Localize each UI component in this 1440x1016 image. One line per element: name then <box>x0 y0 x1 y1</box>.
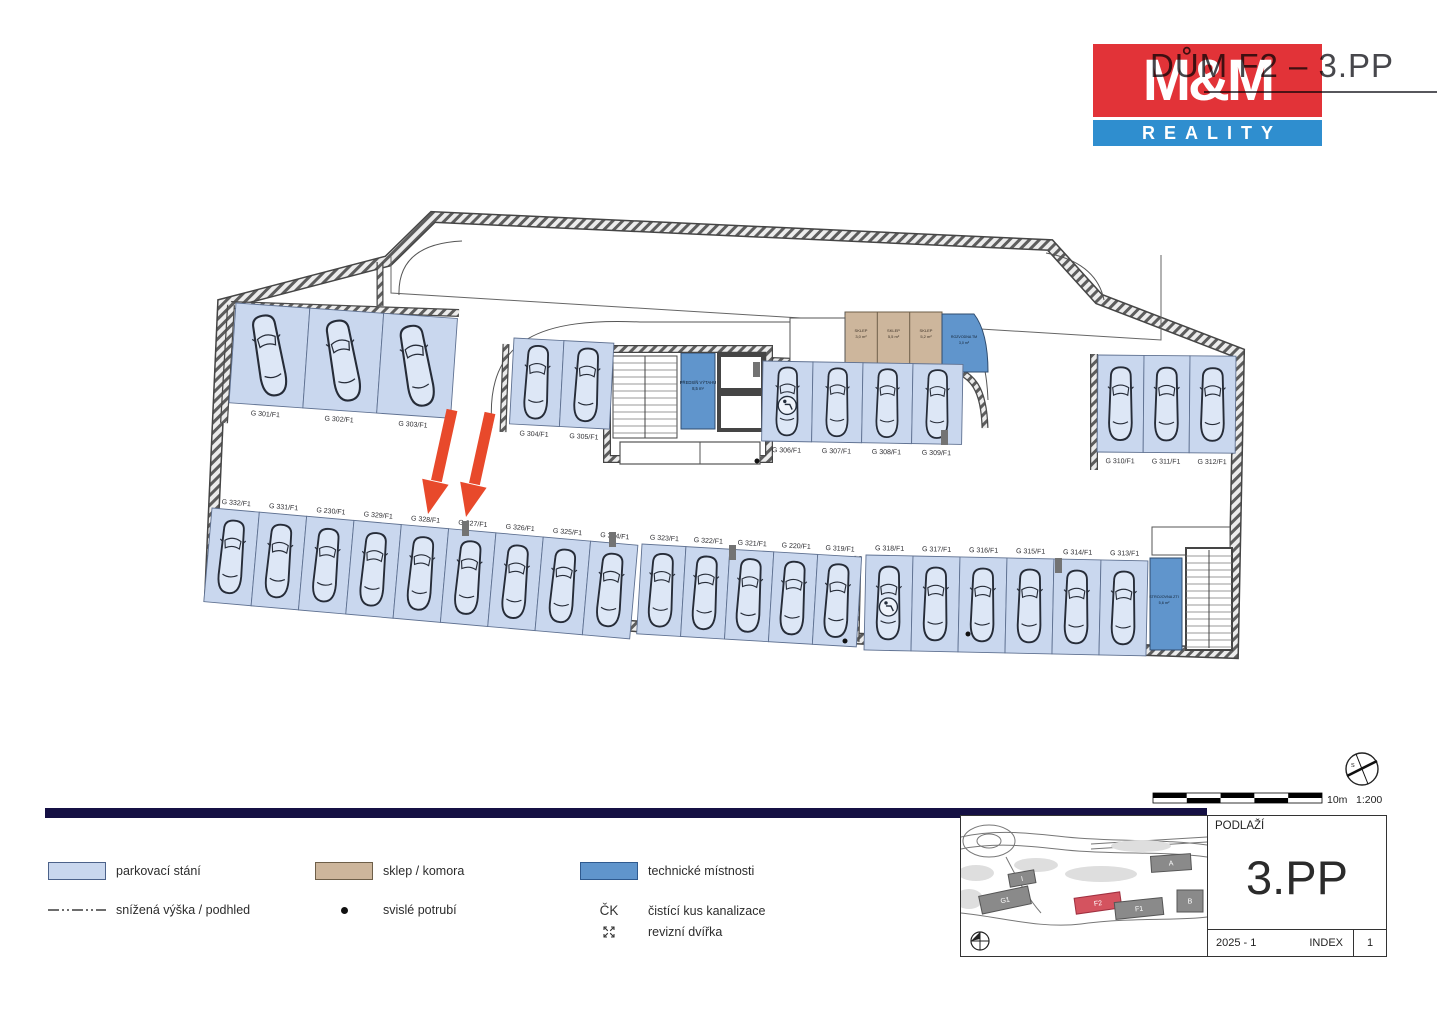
legend-label: sklep / komora <box>383 864 464 878</box>
stall-g-324-f1 <box>582 541 638 639</box>
stall-g-311-f1 <box>1143 355 1190 452</box>
legend-item-cleaning-piece: ČK čistící kus kanalizace <box>580 903 765 918</box>
stall-g-304-f1 <box>509 338 563 426</box>
svg-text:3,0 m²: 3,0 m² <box>959 341 970 345</box>
stall-label: G 331/F1 <box>269 503 299 513</box>
stall-g-327-f1 <box>440 529 496 627</box>
svg-text:5,5 m²: 5,5 m² <box>888 334 900 339</box>
access-door-icon <box>580 924 638 940</box>
stall-label: G 319/F1 <box>825 545 855 554</box>
site-map: IG1F2F1AB <box>961 816 1208 956</box>
stall-g-322-f1 <box>681 547 730 639</box>
map-building-g1: G1 <box>979 886 1032 914</box>
highlight-arrows <box>422 410 490 517</box>
stall-group-bottom-left: G 332/F1G 331/F1G 230/F1G 329/F1G 328/F1… <box>204 498 639 639</box>
legend-label: snížená výška / podhled <box>116 903 250 917</box>
stall-group-top-right: G 310/F1G 311/F1G 312/F1 <box>1097 355 1236 466</box>
stall-label: G 323/F1 <box>650 534 680 543</box>
stall-label: G 322/F1 <box>693 537 723 546</box>
logo-reality: REALITY <box>1093 120 1322 146</box>
stall-label: G 303/F1 <box>398 421 428 430</box>
stall-group-bottom-mid: G 323/F1G 322/F1G 321/F1G 220/F1G 319/F1 <box>637 534 863 647</box>
stall-g-328-f1 <box>393 525 449 623</box>
arrow-g327 <box>460 413 490 517</box>
stall-label: G 325/F1 <box>553 528 583 538</box>
title-block: IG1F2F1AB PODLAŽÍ 3.PP 2025 - 1 INDEX 1 <box>960 815 1387 957</box>
map-building-i: I <box>1008 870 1036 887</box>
room-label-sklep-1: SKLEP <box>855 328 868 333</box>
legend-label: svislé potrubí <box>383 903 457 917</box>
stall-g-331-f1 <box>251 512 307 610</box>
floorplan-page: SKLEP3,0 m²SKLEP5,5 m²SKLEP5,2 m²ROZVODN… <box>0 0 1440 1016</box>
stall-group-top-center-right: G 306/F1G 307/F1G 308/F1G 309/F1 <box>761 361 963 457</box>
room-strojovna <box>1150 558 1182 650</box>
svg-text:F2: F2 <box>1094 900 1103 908</box>
svg-text:S: S <box>1351 763 1355 769</box>
stall-g-303-f1 <box>377 313 458 418</box>
stall-group-bottom-right: G 318/F1G 317/F1G 316/F1G 315/F1G 314/F1… <box>864 545 1148 656</box>
stall-label: G 302/F1 <box>324 415 354 424</box>
inner-walls <box>224 262 1094 642</box>
pillars-and-pipes <box>462 362 1062 644</box>
room-label-sklep-2: SKLEP <box>887 328 900 333</box>
floor-value: 3.PP <box>1208 850 1386 905</box>
ck-symbol: ČK <box>580 903 638 918</box>
garage-walls <box>210 217 1239 653</box>
stall-label: G 326/F1 <box>505 524 535 534</box>
legend-item-storage: sklep / komora <box>315 862 464 880</box>
legend-item-access-door: revizní dvířka <box>580 924 722 940</box>
stall-g-317-f1 <box>911 556 960 652</box>
room-label-sklep-3: SKLEP <box>920 328 933 333</box>
stall-g-315-f1 <box>1005 558 1054 654</box>
stall-g-309-f1 <box>912 364 963 445</box>
index-label: INDEX <box>1309 937 1353 949</box>
central-core <box>607 349 769 464</box>
title-block-right: PODLAŽÍ 3.PP 2025 - 1 INDEX 1 <box>1208 816 1386 956</box>
stall-g-302-f1 <box>303 308 384 413</box>
room-label-strojovna: STROJOVNA ZTI <box>1149 595 1179 599</box>
stall-label: G 315/F1 <box>1016 548 1045 556</box>
floor-label: PODLAŽÍ <box>1215 820 1264 832</box>
room-label-rozvodna: ROZVODNA TM <box>951 335 977 339</box>
svg-text:3,0 m²: 3,0 m² <box>855 334 867 339</box>
room-label-predsin-vytahu: PŘEDSÍŇ VÝTAHU <box>680 380 716 385</box>
stall-label: G 304/F1 <box>519 430 549 439</box>
legend-label: technické místnosti <box>648 864 754 878</box>
stall-g-313-f1 <box>1099 560 1148 656</box>
stall-label: G 332/F1 <box>221 499 251 509</box>
room-rozvodna <box>942 314 988 372</box>
stall-label: G 308/F1 <box>872 449 901 457</box>
stall-g-307-f1 <box>812 362 863 443</box>
svg-text:5,6 m²: 5,6 m² <box>1159 601 1170 605</box>
svg-text:5,2 m²: 5,2 m² <box>920 334 932 339</box>
legend-label: parkovací stání <box>116 864 201 878</box>
legend-label: revizní dvířka <box>648 925 722 939</box>
stall-group-top-left: G 301/F1G 302/F1G 303/F1 <box>228 303 457 431</box>
revision: 2025 - 1 <box>1208 937 1256 949</box>
map-building-f1: F1 <box>1114 898 1164 920</box>
stall-g-314-f1 <box>1052 559 1101 655</box>
map-building-a: A <box>1150 854 1191 873</box>
stall-g-306-f1 <box>762 361 813 442</box>
stall-label: G 318/F1 <box>875 545 904 553</box>
stall-g-308-f1 <box>862 363 913 444</box>
stall-label: G 327/F1 <box>458 520 488 530</box>
stall-label: G 310/F1 <box>1105 458 1134 465</box>
scale-length: 10m <box>1327 794 1348 806</box>
map-building-b: B <box>1177 890 1203 912</box>
stall-label: G 306/F1 <box>772 447 801 455</box>
rooms: SKLEP3,0 m²SKLEP5,5 m²SKLEP5,2 m²ROZVODN… <box>680 312 1182 650</box>
storage-swatch-icon <box>315 862 373 880</box>
stall-label: G 316/F1 <box>969 547 998 555</box>
stall-label: G 305/F1 <box>569 433 599 442</box>
svg-text:B: B <box>1188 899 1193 906</box>
stall-g-301-f1 <box>229 303 310 408</box>
pipe-dot <box>843 639 848 644</box>
stall-g-332-f1 <box>204 508 260 606</box>
arrow-g328 <box>422 410 452 514</box>
legend-item-pipe: svislé potrubí <box>315 903 457 917</box>
north-compass: S <box>1346 753 1378 785</box>
mm-reality-logo: M&M REALITY <box>1093 44 1322 146</box>
stall-g-316-f1 <box>958 557 1007 653</box>
legend-item-lowered-ceiling: snížená výška / podhled <box>48 903 250 917</box>
stall-label: G 309/F1 <box>922 450 951 458</box>
stall-label: G 317/F1 <box>922 546 951 554</box>
legend-item-technical: technické místnosti <box>580 862 754 880</box>
stall-g-326-f1 <box>488 533 544 631</box>
title-block-footer: 2025 - 1 INDEX 1 <box>1208 929 1386 956</box>
floor-panel: PODLAŽÍ 3.PP <box>1208 816 1386 929</box>
legend-item-parking: parkovací stání <box>48 862 201 880</box>
stall-label: G 307/F1 <box>822 448 851 456</box>
stall-g-321-f1 <box>725 549 774 641</box>
svg-text:8,5 m²: 8,5 m² <box>692 386 704 391</box>
ramp-lines <box>391 241 1161 428</box>
room-sklep-block <box>845 312 942 370</box>
pipe-dot-icon <box>315 907 373 914</box>
stall-g-325-f1 <box>535 537 591 635</box>
stall-label: G 312/F1 <box>1197 459 1226 466</box>
parking-swatch-icon <box>48 862 106 880</box>
stall-g-319-f1 <box>812 554 861 646</box>
index-value: 1 <box>1353 930 1386 956</box>
stall-g-323-f1 <box>637 544 686 636</box>
scale-ratio: 1:200 <box>1356 794 1382 806</box>
stall-g-220-f1 <box>768 552 817 644</box>
svg-text:A: A <box>1168 860 1173 867</box>
stall-label: G 311/F1 <box>1152 458 1181 465</box>
stall-label: G 230/F1 <box>316 507 346 517</box>
scale-bar: 10m1:200 <box>1153 793 1382 806</box>
dashdot-line-icon <box>48 908 106 912</box>
stall-g-310-f1 <box>1097 355 1144 452</box>
stall-label: G 328/F1 <box>411 515 441 525</box>
legend-label: čistící kus kanalizace <box>648 904 765 918</box>
stall-group-top-mid: G 304/F1G 305/F1 <box>509 338 614 442</box>
technical-swatch-icon <box>580 862 638 880</box>
stall-label: G 321/F1 <box>737 540 767 549</box>
stall-label: G 220/F1 <box>781 542 811 551</box>
stall-label: G 329/F1 <box>363 511 393 521</box>
stall-g-329-f1 <box>346 520 402 618</box>
stall-g-312-f1 <box>1189 356 1236 453</box>
stall-g-305-f1 <box>559 341 613 429</box>
stall-label: G 301/F1 <box>250 410 280 419</box>
logo-mm: M&M <box>1093 44 1322 117</box>
svg-text:F1: F1 <box>1135 906 1144 914</box>
stall-g-318-f1 <box>864 555 913 651</box>
map-compass <box>971 932 989 950</box>
stall-label: G 324/F1 <box>600 532 630 542</box>
pipe-dot <box>755 459 760 464</box>
stall-label: G 313/F1 <box>1110 550 1139 558</box>
pipe-dot <box>966 632 971 637</box>
room-predsin-vytahu <box>681 353 715 429</box>
stall-label: G 314/F1 <box>1063 549 1092 557</box>
stall-g-230-f1 <box>298 516 354 614</box>
stairs-bottom-right <box>1152 527 1232 650</box>
